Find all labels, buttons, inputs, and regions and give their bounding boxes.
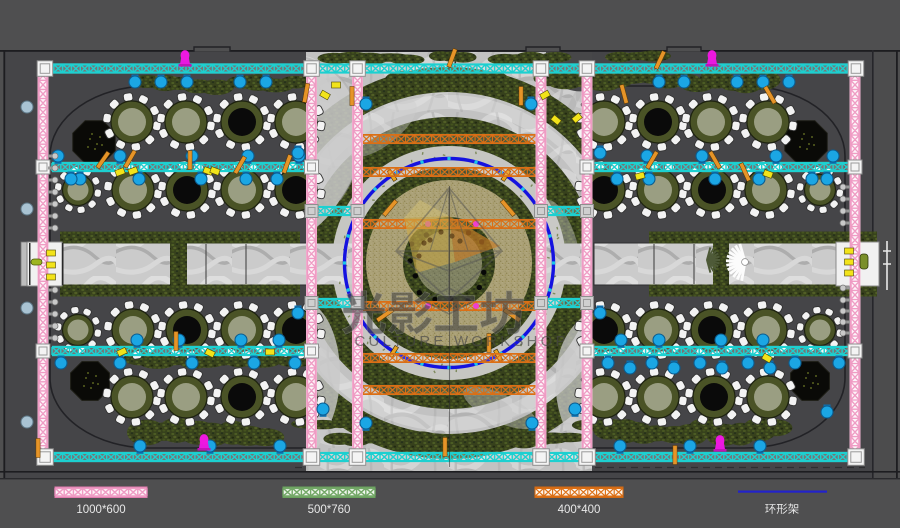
svg-text:400*400: 400*400 bbox=[558, 504, 601, 516]
svg-text:CULTURE WORKSHOP: CULTURE WORKSHOP bbox=[355, 333, 568, 350]
svg-text:500*760: 500*760 bbox=[308, 504, 351, 516]
svg-text:1000*600: 1000*600 bbox=[76, 504, 125, 516]
